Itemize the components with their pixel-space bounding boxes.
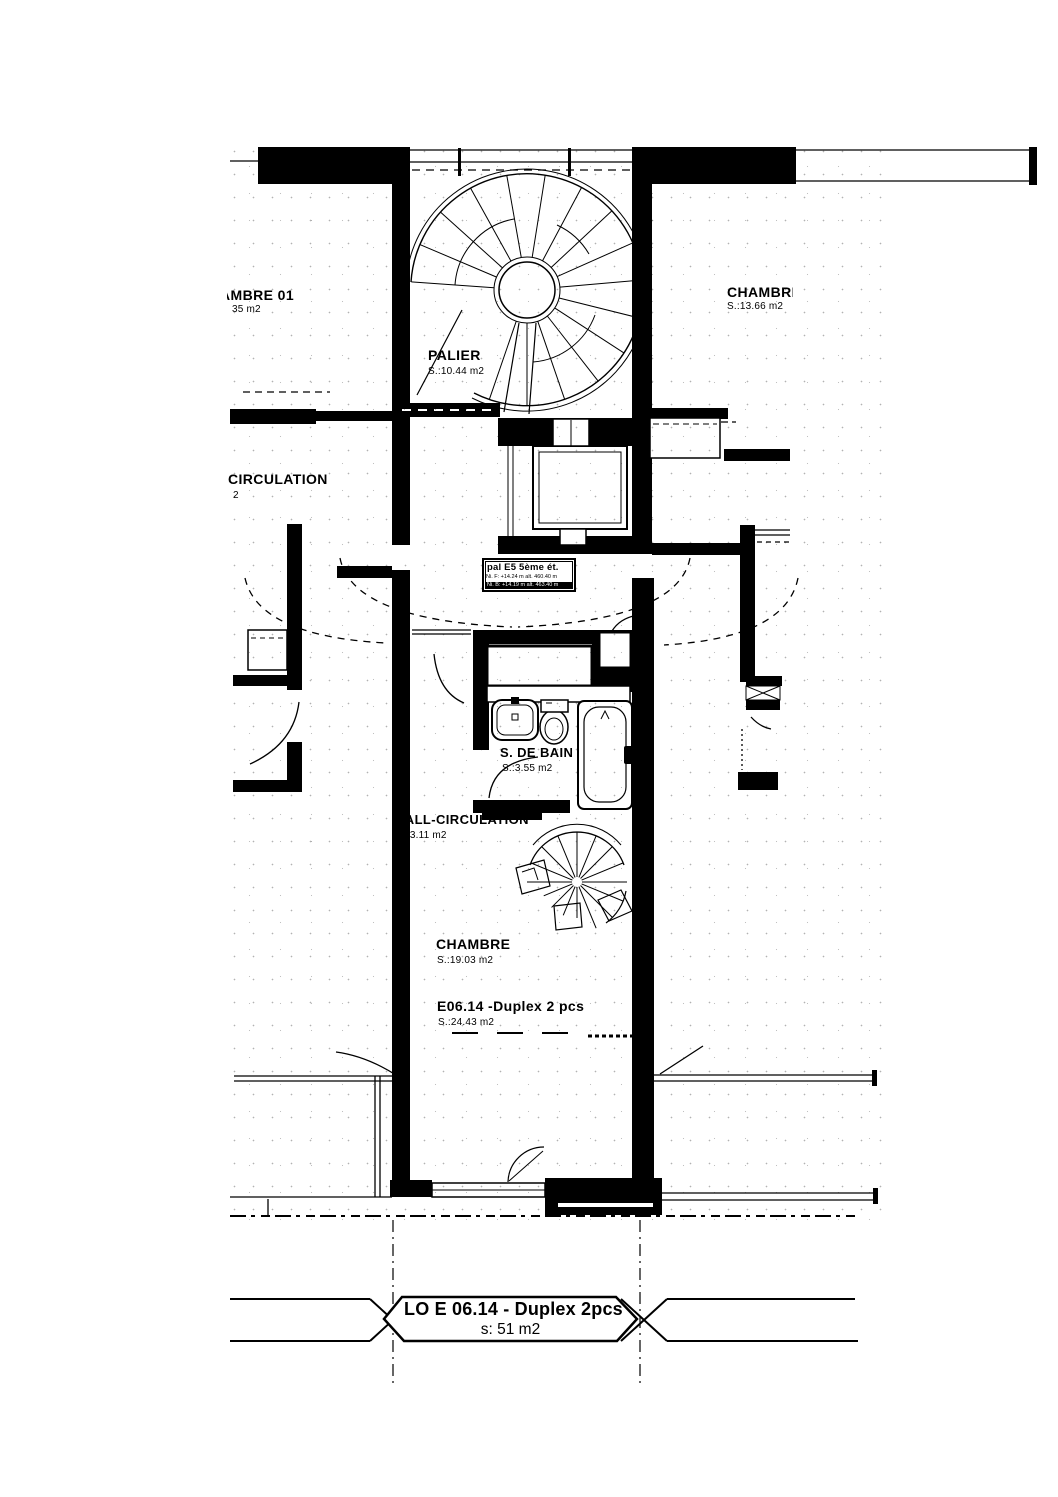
spiral-staircase-upper bbox=[406, 169, 648, 414]
level-tag-line1: Ni. F: +14.24 m alt. 460.40 m bbox=[484, 574, 574, 581]
title-block-line1: LO E 06.14 - Duplex 2pcs bbox=[404, 1300, 617, 1320]
room-area-chambre: S.:19.03 m2 bbox=[437, 955, 493, 966]
room-area-palier: S.:10.44 m2 bbox=[428, 366, 484, 377]
sink-fixture bbox=[492, 697, 538, 740]
room-label-palier: PALIER bbox=[428, 348, 481, 363]
level-dashes bbox=[452, 1033, 634, 1036]
title-block-line2: s: 51 m2 bbox=[404, 1321, 617, 1338]
room-label-chambre01: CHAMBRE 01 bbox=[227, 287, 307, 304]
room-label-chambre-ne: CHAMBRE bbox=[727, 284, 793, 301]
level-tag-box: pal E5 5ème ét. Ni. F: +14.24 m alt. 460… bbox=[482, 558, 576, 592]
room-area-chambre-ne: S.:13.66 m2 bbox=[727, 301, 783, 312]
level-tag-line2: Ni. B: +14.19 m alt. 463.40 m bbox=[485, 582, 573, 589]
spiral-staircase-lower bbox=[516, 824, 632, 930]
toilet-fixture bbox=[540, 700, 568, 744]
bathroom-closet bbox=[487, 646, 592, 686]
bathtub-fixture bbox=[578, 701, 634, 809]
unit-area: S.:24.43 m2 bbox=[438, 1017, 494, 1028]
room-label-circulation: CIRCULATION bbox=[228, 472, 328, 487]
room-area-salle-de-bain: S.:3.55 m2 bbox=[502, 763, 552, 774]
room-area-chambre01: 35 m2 bbox=[232, 304, 261, 315]
floorplan-page: CHAMBRE 01 35 m2 CHAMBRE S.:13.66 m2 PAL… bbox=[0, 0, 1058, 1497]
room-name: CHAMBRE 01 bbox=[227, 288, 294, 303]
level-tag-title: pal E5 5ème ét. bbox=[484, 560, 574, 574]
room-area-hall: S.:3.11 m2 bbox=[397, 830, 447, 841]
bathroom-fixtures bbox=[487, 633, 634, 809]
room-name: CHAMBRE bbox=[727, 284, 793, 300]
room-label-hall: HALL-CIRCULATION bbox=[395, 813, 529, 827]
room-label-salle-de-bain: S. DE BAIN bbox=[500, 746, 573, 760]
room-label-chambre: CHAMBRE bbox=[436, 937, 510, 952]
unit-label: E06.14 -Duplex 2 pcs bbox=[437, 999, 584, 1014]
room-area-circulation: 2 bbox=[233, 490, 239, 501]
